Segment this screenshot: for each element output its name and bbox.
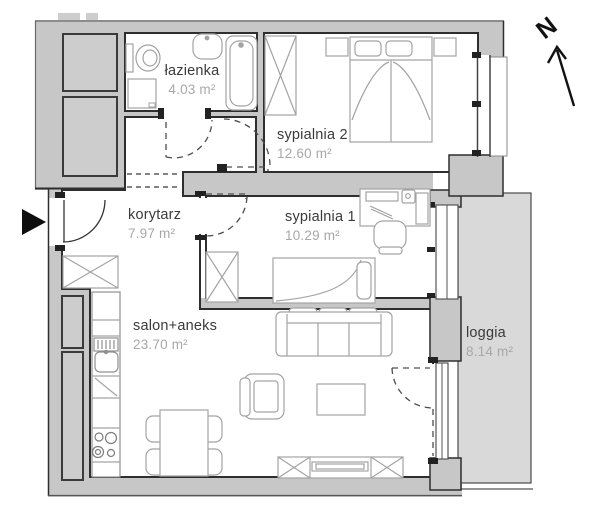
building-continuation-tab (58, 13, 80, 21)
room-name: sypialnia 2 (277, 126, 348, 145)
room-area: 23.70 m² (133, 336, 217, 354)
room-label-sypialnia2: sypialnia 2 12.60 m² (277, 126, 348, 163)
bathroom-sink-icon (193, 34, 222, 59)
room-area: 4.03 m² (148, 81, 236, 99)
tv-cabinet-icon (278, 457, 403, 478)
north-arrow-icon (548, 47, 574, 106)
wall-pier (449, 155, 503, 196)
single-bed-icon (273, 258, 375, 303)
kitchen-counter (92, 292, 120, 477)
office-chair-icon (374, 221, 406, 254)
room-name: salon+aneks (133, 317, 217, 336)
room-label-korytarz: korytarz 7.97 m² (128, 206, 181, 243)
entrance-arrow-icon (22, 209, 46, 235)
room-name: loggia (466, 324, 513, 343)
kitchen-sink-icon (94, 338, 118, 372)
room-name: korytarz (128, 206, 181, 225)
window-bedroom2 (472, 52, 507, 157)
room-area: 8.14 m² (466, 343, 513, 361)
wardrobe-icon (63, 256, 118, 288)
wardrobe-icon (206, 252, 238, 302)
wall-shaft (63, 97, 117, 176)
room-area: 7.97 m² (128, 225, 181, 243)
nightstand-icon (326, 38, 348, 56)
double-bed-icon (350, 37, 432, 142)
nightstand-icon (434, 38, 456, 56)
sofa-icon (276, 308, 392, 356)
building-continuation-tab (86, 13, 98, 21)
wardrobe-icon (265, 36, 296, 115)
room-area: 10.29 m² (285, 227, 356, 245)
room-label-salon: salon+aneks 23.70 m² (133, 317, 217, 354)
wall-pier (430, 297, 461, 361)
room-label-lazienka: łazienka 4.03 m² (148, 62, 236, 99)
wall-shaft (63, 34, 117, 91)
armchair-icon (240, 374, 284, 419)
wall-shaft (62, 296, 83, 348)
room-name: łazienka (148, 62, 236, 81)
room-label-sypialnia1: sypialnia 1 10.29 m² (285, 208, 356, 245)
room-area: 12.60 m² (277, 145, 348, 163)
wall-shaft (62, 352, 83, 480)
coffee-table-icon (317, 384, 365, 415)
balcony-door-frame (436, 363, 448, 459)
floor-plan: łazienka 4.03 m² sypialnia 2 12.60 m² ko… (0, 0, 600, 518)
room-label-loggia: loggia 8.14 m² (466, 324, 513, 361)
floor-plan-drawing (0, 0, 600, 518)
room-name: sypialnia 1 (285, 208, 356, 227)
wall-bottom (48, 476, 462, 497)
